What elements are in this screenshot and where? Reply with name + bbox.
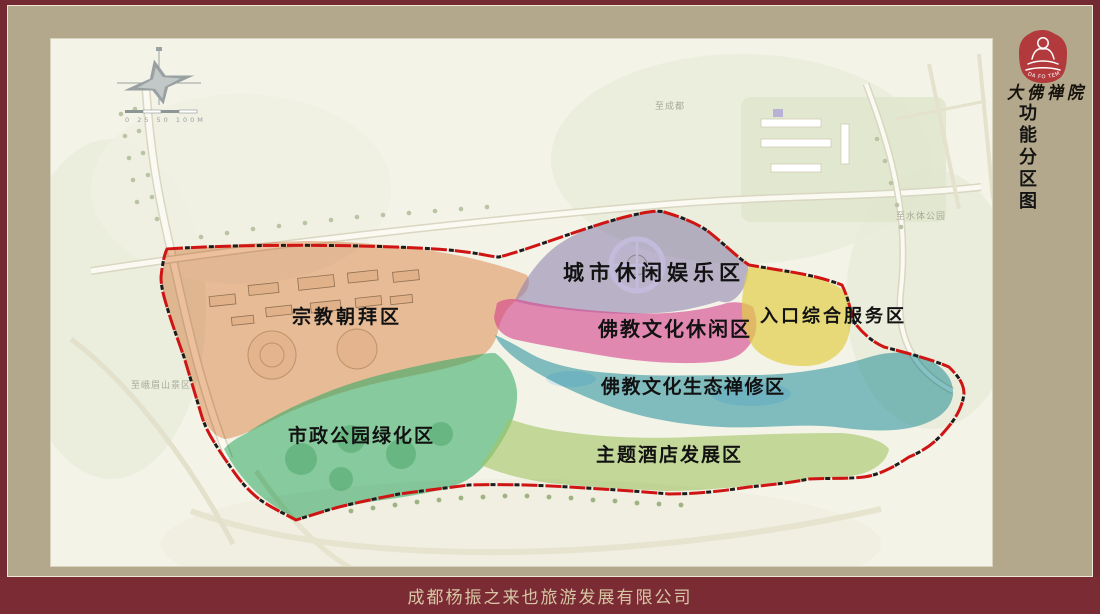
road-label-to-emei-scenic-area: 至峨眉山景区 [131, 378, 191, 391]
zone-label-entrance-service: 入口综合服务区 [760, 308, 907, 326]
scale-bar: 0 25 50 100M [125, 110, 206, 124]
map-title-vertical: 功能分区图 [1013, 103, 1039, 213]
zone-label-urban-leisure: 城市休闲娱乐区 [563, 263, 745, 284]
zone-label-municipal-park: 市政公园绿化区 [288, 427, 435, 446]
scale-label: 0 25 50 100M [125, 116, 206, 124]
site-plan-map: 0 25 50 100M 宗教朝拜区 城市休闲娱乐区 佛教文化休闲区 入口综合服… [50, 38, 993, 567]
road-label-to-water-park: 至水体公园 [896, 209, 946, 222]
site-plan-svg: 0 25 50 100M [51, 39, 993, 567]
temple-name-calligraphy: 大佛禅院 [993, 78, 1100, 104]
zone-label-theme-hotel: 主题酒店发展区 [596, 446, 743, 465]
title-sidebar: DA FO TEMPLE 大佛禅院 功能分区图 [993, 11, 1100, 581]
footer-bar: 成都杨振之来也旅游发展有限公司 [0, 577, 1100, 614]
road-label-to-chengdu: 至成都 [655, 99, 685, 112]
zone-label-eco-meditation: 佛教文化生态禅修区 [601, 378, 786, 397]
zone-label-religious-worship: 宗教朝拜区 [292, 308, 402, 327]
company-name: 成都杨振之来也旅游发展有限公司 [408, 583, 693, 608]
mat-frame: 0 25 50 100M 宗教朝拜区 城市休闲娱乐区 佛教文化休闲区 入口综合服… [7, 5, 1093, 577]
zone-label-buddhist-leisure: 佛教文化休闲区 [598, 319, 752, 339]
